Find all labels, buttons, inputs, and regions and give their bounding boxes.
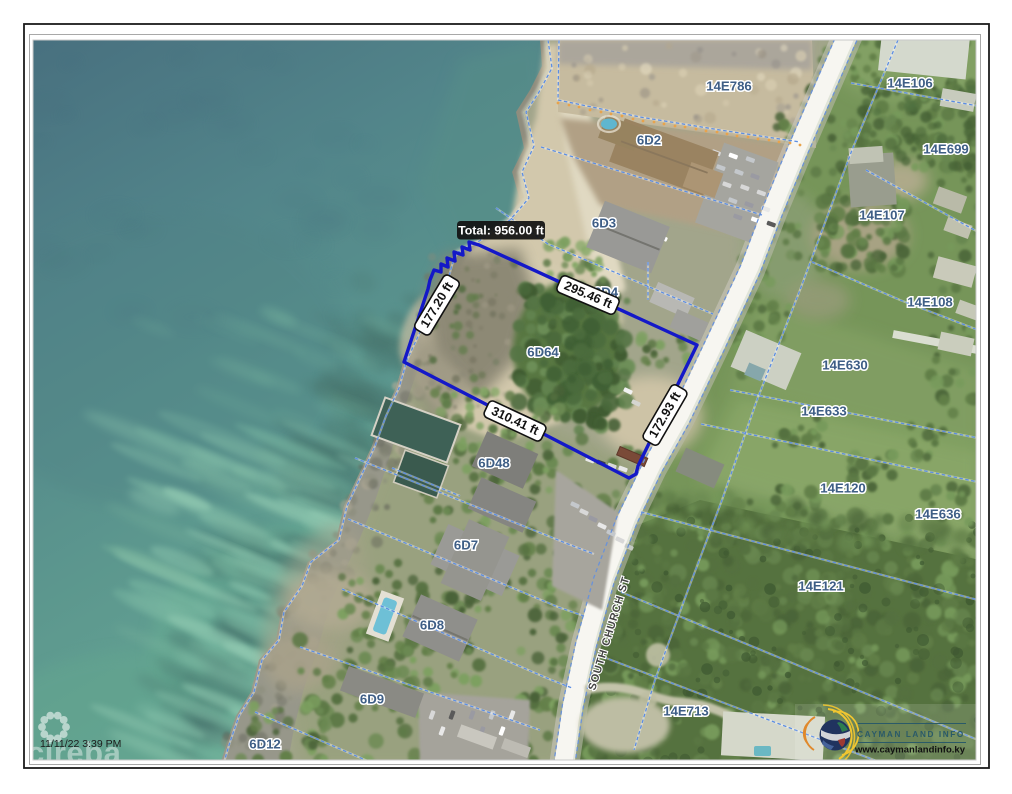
svg-text:CAYMAN LAND INFO: CAYMAN LAND INFO	[857, 730, 965, 739]
svg-text:14E633: 14E633	[801, 403, 846, 418]
svg-text:6D48: 6D48	[478, 455, 510, 470]
svg-text:14E106: 14E106	[887, 75, 932, 90]
svg-text:14E636: 14E636	[915, 506, 960, 521]
svg-text:www.caymanlandinfo.ky: www.caymanlandinfo.ky	[854, 745, 966, 756]
svg-text:11/11/22 3:39 PM: 11/11/22 3:39 PM	[40, 738, 121, 750]
svg-text:14E713: 14E713	[663, 703, 708, 718]
svg-text:14E786: 14E786	[706, 78, 751, 93]
svg-text:14E121: 14E121	[798, 578, 843, 593]
svg-text:Total: 956.00 ft: Total: 956.00 ft	[458, 223, 544, 237]
svg-text:6D3: 6D3	[592, 215, 616, 230]
svg-text:14E107: 14E107	[859, 207, 904, 222]
svg-text:6D64: 6D64	[527, 344, 559, 359]
svg-text:14E699: 14E699	[923, 141, 968, 156]
svg-text:6D7: 6D7	[454, 537, 478, 552]
svg-text:6D9: 6D9	[360, 691, 384, 706]
svg-text:6D2: 6D2	[637, 132, 661, 147]
svg-text:14E120: 14E120	[820, 480, 865, 495]
svg-text:6D8: 6D8	[420, 617, 444, 632]
svg-text:14E630: 14E630	[822, 357, 867, 372]
svg-text:6D12: 6D12	[249, 736, 281, 751]
svg-text:14E108: 14E108	[907, 294, 952, 309]
